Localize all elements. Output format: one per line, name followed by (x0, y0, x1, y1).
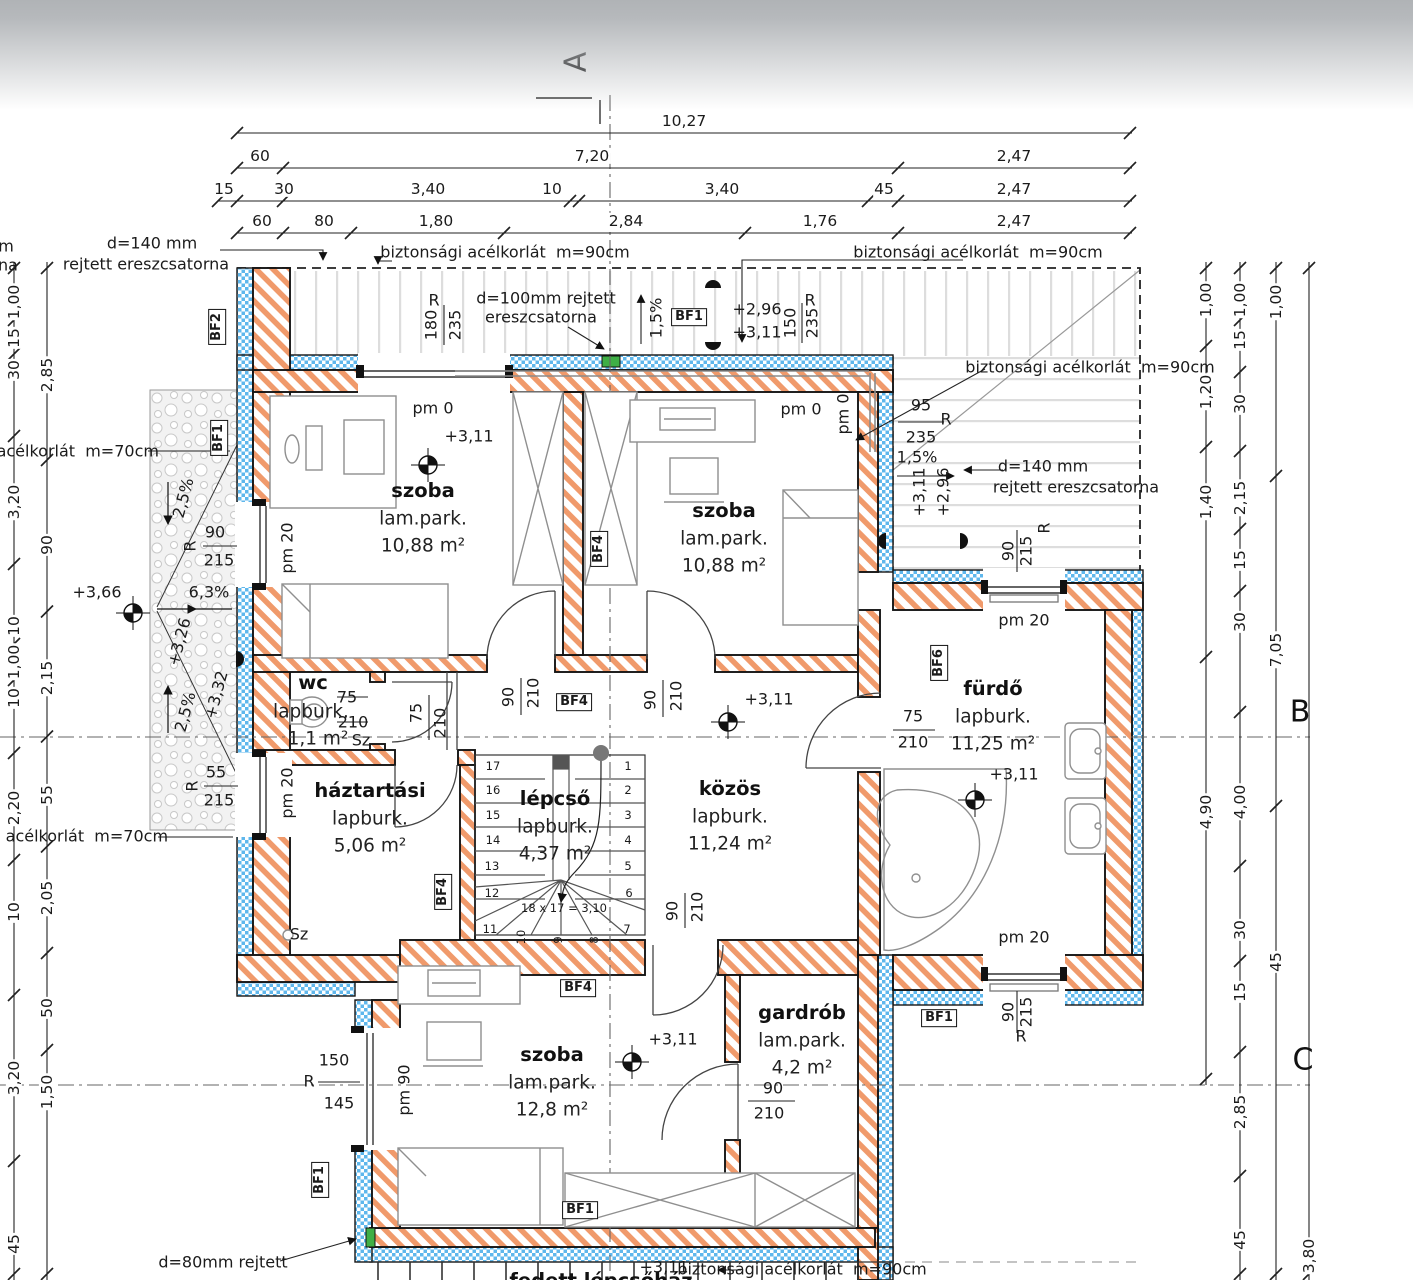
dimension: 10 (6, 615, 22, 637)
annotation: 6,3% (189, 585, 230, 602)
window-tag: BF4 (556, 693, 592, 711)
room-finish: lapburk. (955, 707, 1031, 726)
room-name: szoba (692, 501, 755, 521)
dimension: 2,15 (1232, 480, 1248, 517)
annotation: +2,96 (732, 302, 781, 319)
annotation: 90 (501, 687, 518, 707)
dimension: 2,15 (39, 660, 55, 697)
stair-step-number: 3 (624, 809, 631, 821)
annotation: 215 (1019, 997, 1036, 1028)
room-finish: lam.park. (758, 1031, 846, 1050)
annotation: +3,11 (732, 325, 781, 342)
annotation: 235 (448, 310, 465, 341)
dimension: 1,76 (802, 213, 839, 229)
window-tag: BF1 (311, 1162, 329, 1198)
room-name: fürdő (963, 679, 1022, 699)
dimension: 1,50 (39, 1074, 55, 1111)
dimension: 3,40 (410, 181, 447, 197)
room-area: 4,37 m² (519, 844, 592, 863)
annotation: R (428, 293, 439, 310)
annotation: pm 20 (280, 767, 297, 818)
dimension: 1,00 (6, 284, 22, 321)
annotation: +3,32 (203, 669, 232, 721)
annotation: 210 (898, 735, 929, 752)
room-area: 10,88 m² (381, 536, 465, 555)
room-area: 5,06 m² (334, 836, 407, 855)
annotation: 2,5% (173, 690, 200, 734)
stair-step-number: 11 (483, 923, 498, 935)
dimension: 1,00 (1232, 282, 1248, 319)
dimension: 2,85 (1232, 1094, 1248, 1131)
dimension: 30 (1232, 393, 1248, 415)
annotation: d=140 mm (998, 459, 1088, 476)
stair-step-number: 4 (624, 834, 631, 846)
annotation: ereszcsatorna (485, 310, 597, 327)
room-name: háztartási (314, 781, 425, 801)
dimension: 15 (1232, 329, 1248, 351)
stair-step-number: 5 (624, 860, 631, 872)
window-tag: BF6 (930, 645, 948, 681)
annotation: +3,11 (648, 1032, 697, 1049)
room-finish: lam.park. (680, 529, 768, 548)
annotation: Sz (290, 927, 309, 944)
dimension: 1,40 (1198, 484, 1214, 521)
annotation: d=100mm rejtett (476, 291, 616, 308)
dimension: 90 (39, 534, 55, 556)
annotation: Sz (352, 733, 371, 750)
annotation: pm 0 (836, 393, 853, 434)
dimension: 2,47 (996, 181, 1033, 197)
dimension: 45 (1232, 1229, 1248, 1251)
annotation: +2,96 (936, 467, 953, 516)
annotation: 215 (1019, 536, 1036, 567)
annotation: +3,11 (912, 467, 929, 516)
annotation: pm 20 (998, 613, 1049, 630)
annotation: 235 (906, 430, 937, 447)
dimension: 4,90 (1198, 794, 1214, 831)
annotation: R (185, 780, 202, 791)
dimension: 7,20 (574, 148, 611, 164)
room-name: közös (699, 779, 761, 799)
annotation: pm 0 (780, 402, 821, 419)
room-finish: lam.park. (508, 1073, 596, 1092)
annotation: biztonsági acélkorlát m=90cm (853, 245, 1102, 262)
annotation: 1,1 m² (288, 729, 349, 748)
annotation: 215 (204, 553, 235, 570)
floor-plan-canvas: d=140 mmrejtett ereszcsatornamnabiztonsá… (0, 0, 1413, 1280)
annotation: 215 (204, 793, 235, 810)
dimension: 55 (39, 784, 55, 806)
stair-step-number: 2 (624, 784, 631, 796)
stair-step-number: 6 (625, 887, 632, 899)
window-tag: BF1 (921, 1009, 957, 1027)
annotation: m (0, 239, 14, 256)
dimension: 2,85 (39, 357, 55, 394)
room-area: 4,2 m² (772, 1058, 833, 1077)
window-tag: BF2 (208, 309, 226, 345)
dimension: 60 (249, 148, 271, 164)
window-tag: BF4 (560, 979, 596, 997)
annotation: R (940, 412, 951, 429)
annotation: 1,5% (649, 298, 666, 339)
stair-step-number: 9 (552, 936, 564, 943)
stair-step-number: 7 (623, 923, 630, 935)
window-tag: BF4 (434, 874, 452, 910)
dimension: 15 (213, 181, 235, 197)
dimension: 2,05 (39, 880, 55, 917)
annotation: 180 (424, 310, 441, 341)
dimension: 50 (39, 997, 55, 1019)
annotation: d=80mm rejtett (158, 1255, 287, 1272)
section-marker-c: C (1293, 1044, 1314, 1076)
annotation: fedett lépcsőház (509, 1271, 692, 1280)
annotation: 1,5% (897, 450, 938, 467)
annotation: 210 (526, 678, 543, 709)
room-name: szoba (391, 481, 454, 501)
stair-step-number: 12 (485, 887, 500, 899)
annotation: d=140 mm (107, 236, 197, 253)
dimension: 7,05 (1268, 632, 1284, 669)
window-tag: BF1 (562, 1201, 598, 1219)
dimension: 10,27 (661, 113, 707, 129)
dimension: 10 (6, 687, 22, 709)
dimension: 80 (313, 213, 335, 229)
dimension: 45 (6, 1233, 22, 1255)
annotation: 90 (205, 525, 225, 542)
stair-step-number: 10 (515, 930, 527, 945)
annotation: rejtett ereszcsatorna (63, 257, 229, 274)
dimension: 3,80 (1301, 1238, 1317, 1275)
annotation: +3,66 (72, 585, 121, 602)
window-tag: BF4 (590, 531, 608, 567)
window-tag: BF1 (671, 308, 707, 326)
dimension: 30 (1232, 611, 1248, 633)
annotation: pm 90 (397, 1064, 414, 1115)
stair-step-number: 15 (486, 809, 501, 821)
annotation: 150 (783, 308, 800, 339)
room-name: gardrób (758, 1003, 846, 1023)
annotation: na (0, 258, 18, 275)
dimension: 4,00 (1232, 784, 1248, 821)
annotation: biztonsági acélkorlát m=90cm (965, 360, 1214, 377)
annotation: +3,11 (444, 429, 493, 446)
annotation: 210 (669, 681, 686, 712)
stair-step-number: 13 (485, 860, 500, 872)
annotation: 75 (903, 709, 923, 726)
dimension: 30 (1232, 919, 1248, 941)
section-marker-a: A (560, 52, 592, 73)
stair-step-number: 1 (624, 760, 631, 772)
dimension: 3,20 (6, 484, 22, 521)
dimension: 1,00 (1198, 282, 1214, 319)
dimension: 2,84 (608, 213, 645, 229)
room-name: szoba (520, 1045, 583, 1065)
annotation: 75 (409, 703, 426, 723)
room-area: 12,8 m² (516, 1100, 589, 1119)
annotation: 210 (754, 1106, 785, 1123)
dimension: 10 (541, 181, 563, 197)
annotation: gi acélkorlát m=70cm (0, 829, 168, 846)
annotation: 95 (911, 398, 931, 415)
dimension: 3,20 (6, 1060, 22, 1097)
room-area: 11,25 m² (951, 734, 1035, 753)
stair-step-number: 14 (486, 834, 501, 846)
dimension: 1,20 (1198, 374, 1214, 411)
room-finish: lapburk. (692, 807, 768, 826)
dimension: 30 (273, 181, 295, 197)
dimension: 3,40 (704, 181, 741, 197)
annotation: 90 (763, 1081, 783, 1098)
annotation: 90 (1001, 541, 1018, 561)
dimension: 30 (6, 359, 22, 381)
section-marker-b: B (1290, 696, 1311, 728)
room-area: 11,24 m² (688, 834, 772, 853)
dimension: 45 (873, 181, 895, 197)
annotation: 55 (206, 765, 226, 782)
annotation: 145 (324, 1096, 355, 1113)
annotation: 150 (319, 1053, 350, 1070)
annotation: i acélkorlát m=70cm (0, 444, 159, 461)
annotation: biztonsági acélkorlát m=90cm (677, 1262, 926, 1279)
annotation: 210 (690, 892, 707, 923)
dimension: 15 (1232, 981, 1248, 1003)
stair-step-number: 17 (486, 760, 501, 772)
annotation: +3,11 (989, 767, 1038, 784)
room-finish: lapburk. (332, 809, 408, 828)
annotation: 90 (643, 690, 660, 710)
room-finish: lapburk. (517, 817, 593, 836)
room-area: 10,88 m² (682, 556, 766, 575)
dimension: 1,00 (6, 644, 22, 681)
dimension: 15 (6, 327, 22, 349)
annotation: +3,26 (166, 616, 195, 668)
dimension: 1,80 (418, 213, 455, 229)
dimension: 60 (251, 213, 273, 229)
annotation: pm 0 (412, 401, 453, 418)
dimension: 1,00 (1268, 284, 1284, 321)
labels-layer: d=140 mmrejtett ereszcsatornamnabiztonsá… (0, 0, 1413, 1280)
annotation: 210 (433, 708, 450, 739)
stair-formula: 18 x 17 = 3,10 (521, 902, 607, 914)
room-name: lépcső (520, 789, 590, 809)
room-finish: lam.park. (379, 509, 467, 528)
annotation: 235 (805, 308, 822, 339)
stair-step-number: 8 (588, 936, 600, 943)
annotation: R (1015, 1029, 1026, 1046)
annotation: wc (298, 673, 328, 693)
annotation: pm 20 (998, 930, 1049, 947)
window-tag: BF1 (210, 420, 228, 456)
annotation: 90 (665, 901, 682, 921)
annotation: 2,5% (171, 476, 198, 520)
annotation: R (303, 1074, 314, 1091)
annotation: R (183, 540, 200, 551)
annotation: +3,11 (744, 692, 793, 709)
dimension: 2,47 (996, 148, 1033, 164)
dimension: 2,47 (996, 213, 1033, 229)
annotation: rejtett ereszcsatorna (993, 480, 1159, 497)
annotation: biztonsági acélkorlát m=90cm (380, 245, 629, 262)
annotation: pm 20 (280, 522, 297, 573)
dimension: 15 (1232, 549, 1248, 571)
annotation: R (1037, 522, 1054, 533)
stair-step-number: 16 (486, 784, 501, 796)
dimension: 10 (6, 901, 22, 923)
dimension: 2,20 (6, 790, 22, 827)
annotation: 90 (1001, 1002, 1018, 1022)
dimension: 45 (1268, 951, 1284, 973)
